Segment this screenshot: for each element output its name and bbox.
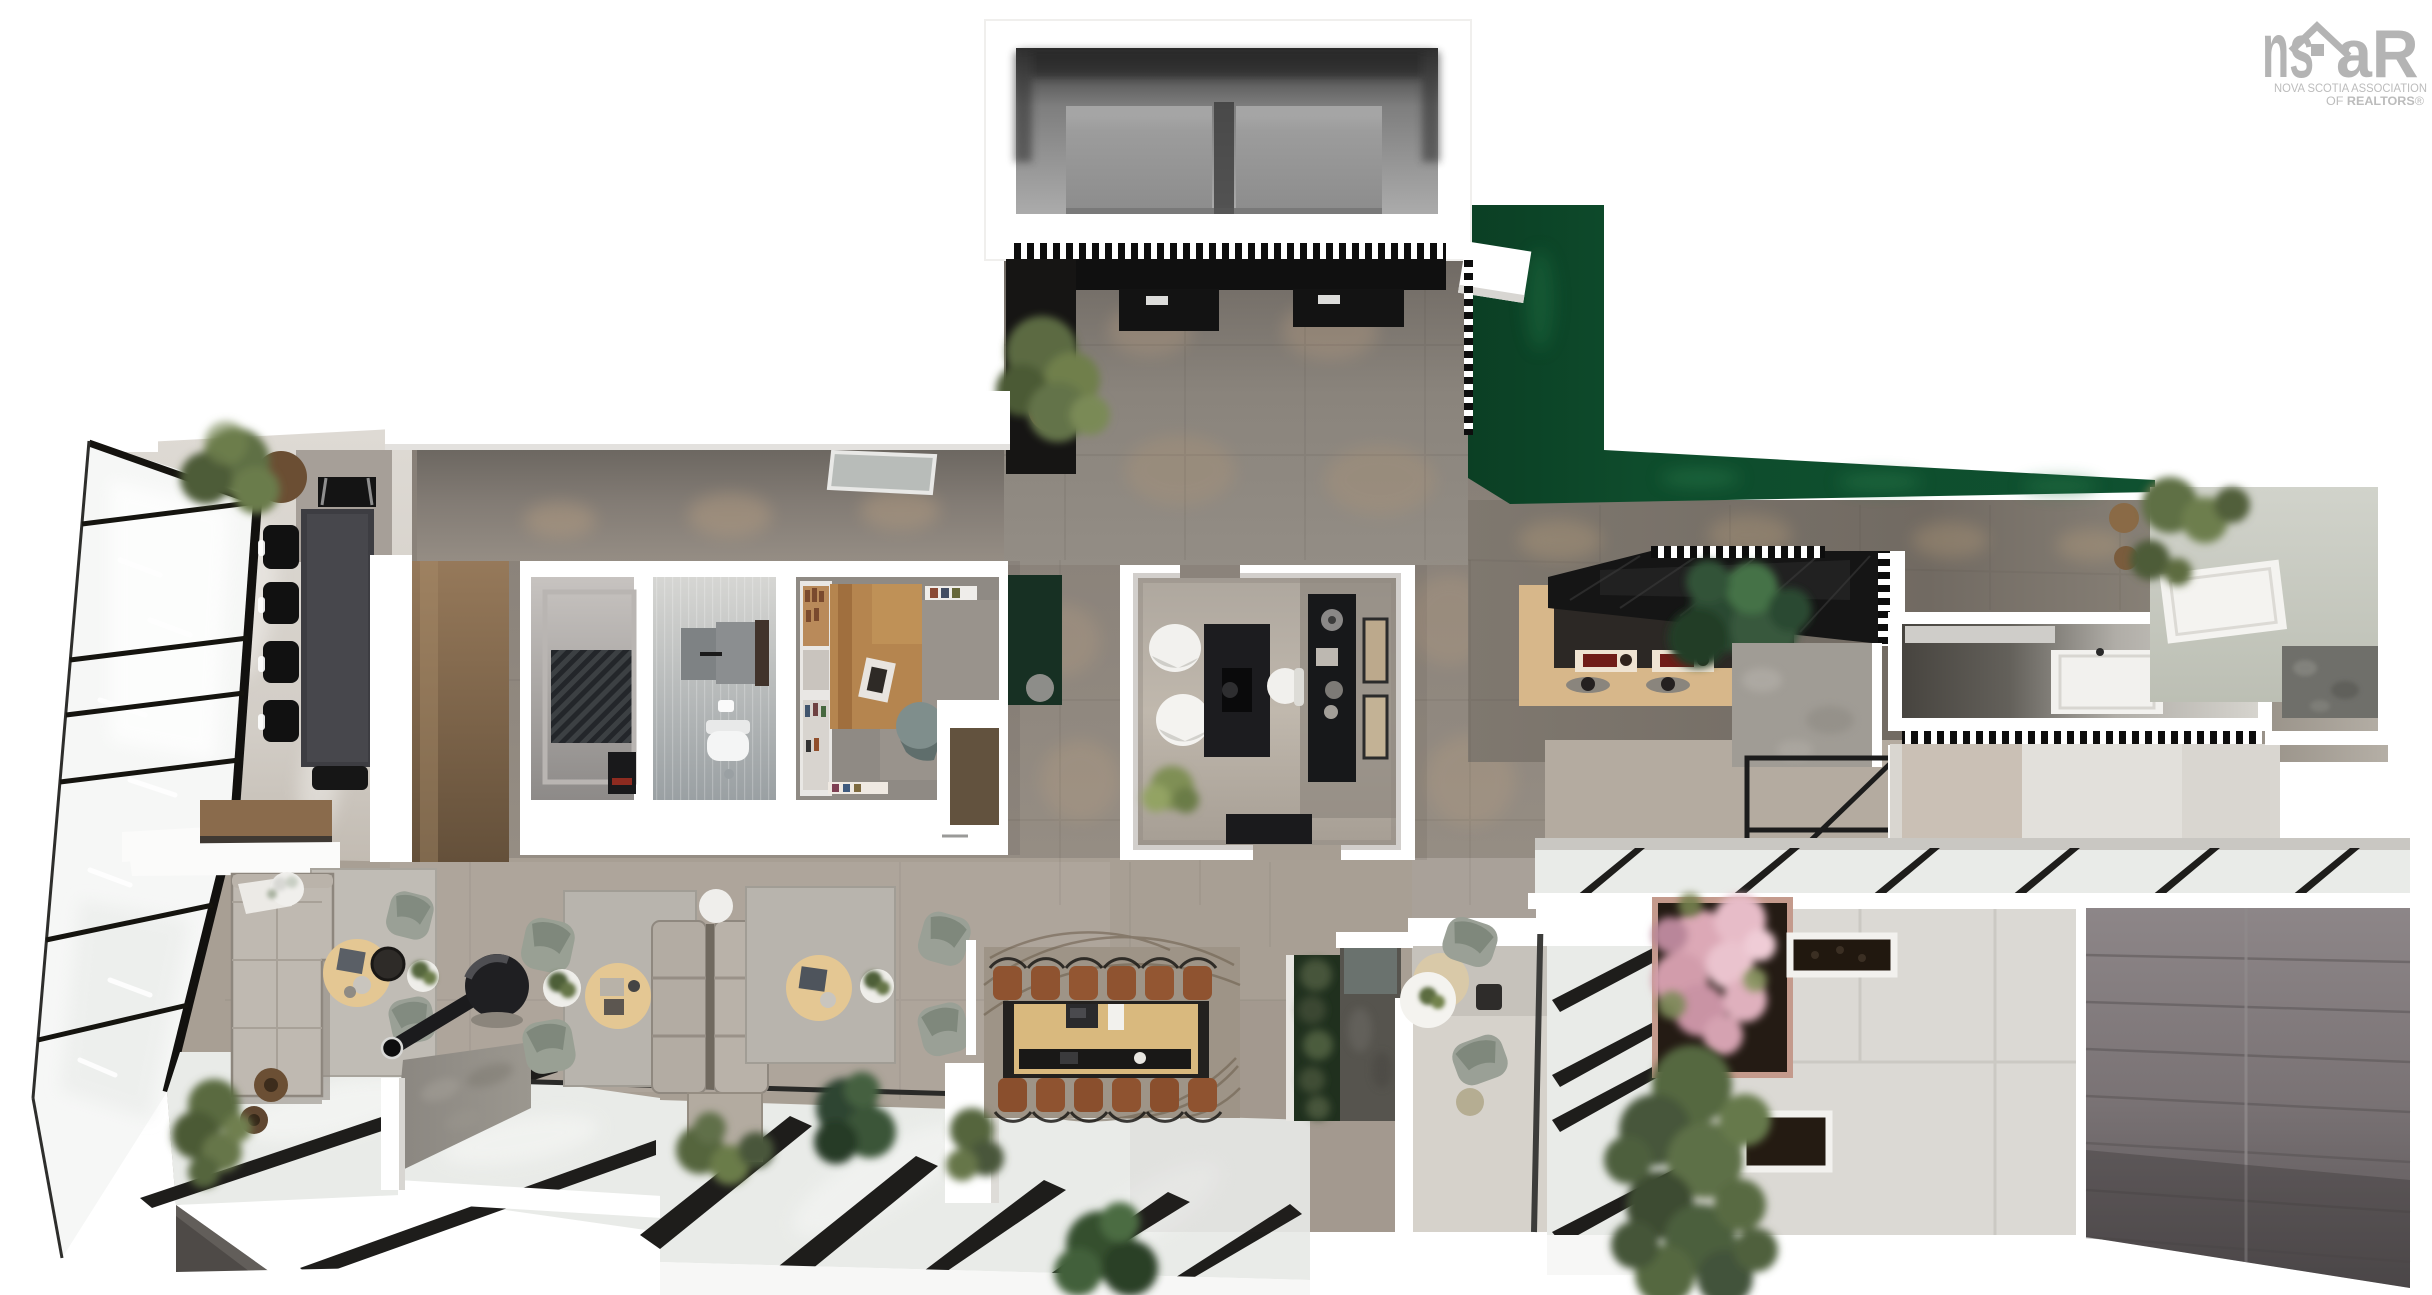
svg-text:OF REALTORS®: OF REALTORS® (2326, 96, 2425, 108)
svg-text:ns: ns (2262, 8, 2314, 94)
svg-text:NOVA SCOTIA ASSOCIATION: NOVA SCOTIA ASSOCIATION (2274, 83, 2427, 95)
